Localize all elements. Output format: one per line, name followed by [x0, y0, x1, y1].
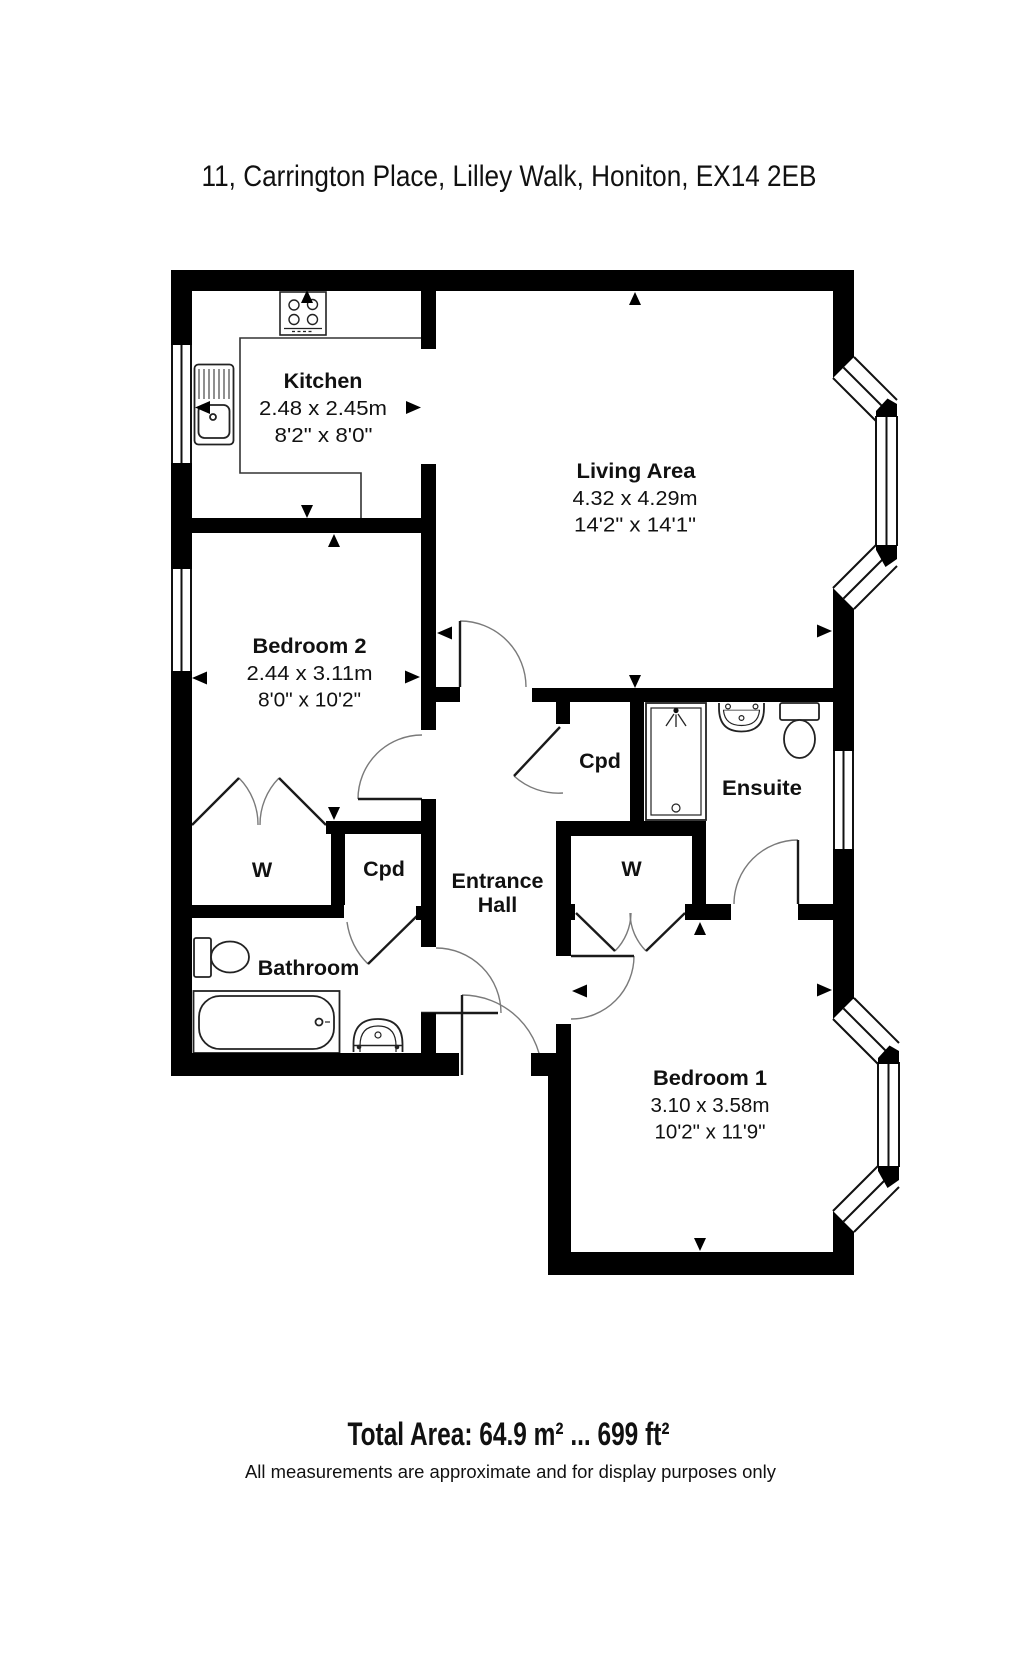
svg-text:Bedroom 1: Bedroom 1: [653, 1066, 767, 1090]
svg-text:Living Area: Living Area: [577, 459, 697, 483]
svg-text:3.10 x 3.58m: 3.10 x 3.58m: [651, 1094, 770, 1117]
svg-text:2.48 x 2.45m: 2.48 x 2.45m: [259, 397, 387, 420]
svg-text:Ensuite: Ensuite: [722, 776, 802, 800]
svg-text:Hall: Hall: [478, 893, 517, 917]
svg-text:All measurements are approxima: All measurements are approximate and for…: [245, 1461, 777, 1482]
svg-text:Cpd: Cpd: [579, 749, 621, 773]
svg-text:4.32 x 4.29m: 4.32 x 4.29m: [573, 487, 698, 510]
svg-text:Bedroom 2: Bedroom 2: [253, 634, 367, 658]
svg-text:Total Area: 64.9 m² ... 699 ft: Total Area: 64.9 m² ... 699 ft²: [348, 1416, 670, 1452]
svg-text:8'0" x 10'2": 8'0" x 10'2": [258, 689, 361, 712]
svg-text:8'2" x 8'0": 8'2" x 8'0": [275, 424, 373, 447]
svg-text:2.44 x 3.11m: 2.44 x 3.11m: [247, 662, 373, 685]
svg-text:W: W: [621, 857, 642, 881]
svg-text:Entrance: Entrance: [451, 869, 543, 893]
svg-text:Bathroom: Bathroom: [258, 956, 360, 980]
svg-text:11, Carrington Place, Lilley W: 11, Carrington Place, Lilley Walk, Honit…: [202, 160, 817, 193]
svg-text:10'2" x 11'9": 10'2" x 11'9": [655, 1121, 766, 1144]
svg-text:Kitchen: Kitchen: [284, 369, 363, 393]
svg-text:14'2" x 14'1": 14'2" x 14'1": [574, 514, 696, 537]
svg-text:Cpd: Cpd: [363, 857, 405, 881]
svg-text:W: W: [252, 858, 273, 882]
